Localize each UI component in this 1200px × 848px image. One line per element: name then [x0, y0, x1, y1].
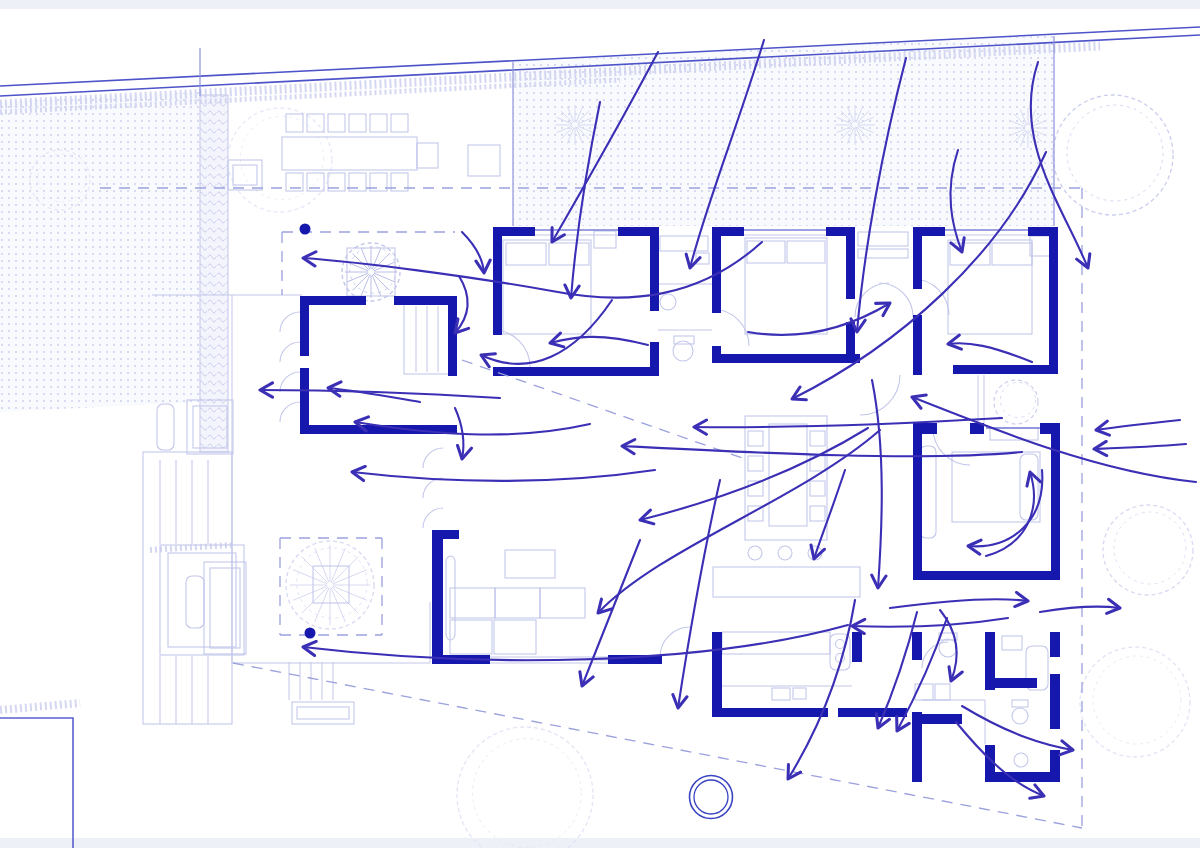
floor-plan-drawing	[0, 0, 1200, 848]
pool-outline	[0, 718, 73, 848]
site-plan-canvas	[0, 0, 1200, 848]
hedge-strip	[200, 95, 228, 452]
dotted-garden-areas	[0, 35, 1054, 412]
feature-circle	[690, 776, 733, 819]
